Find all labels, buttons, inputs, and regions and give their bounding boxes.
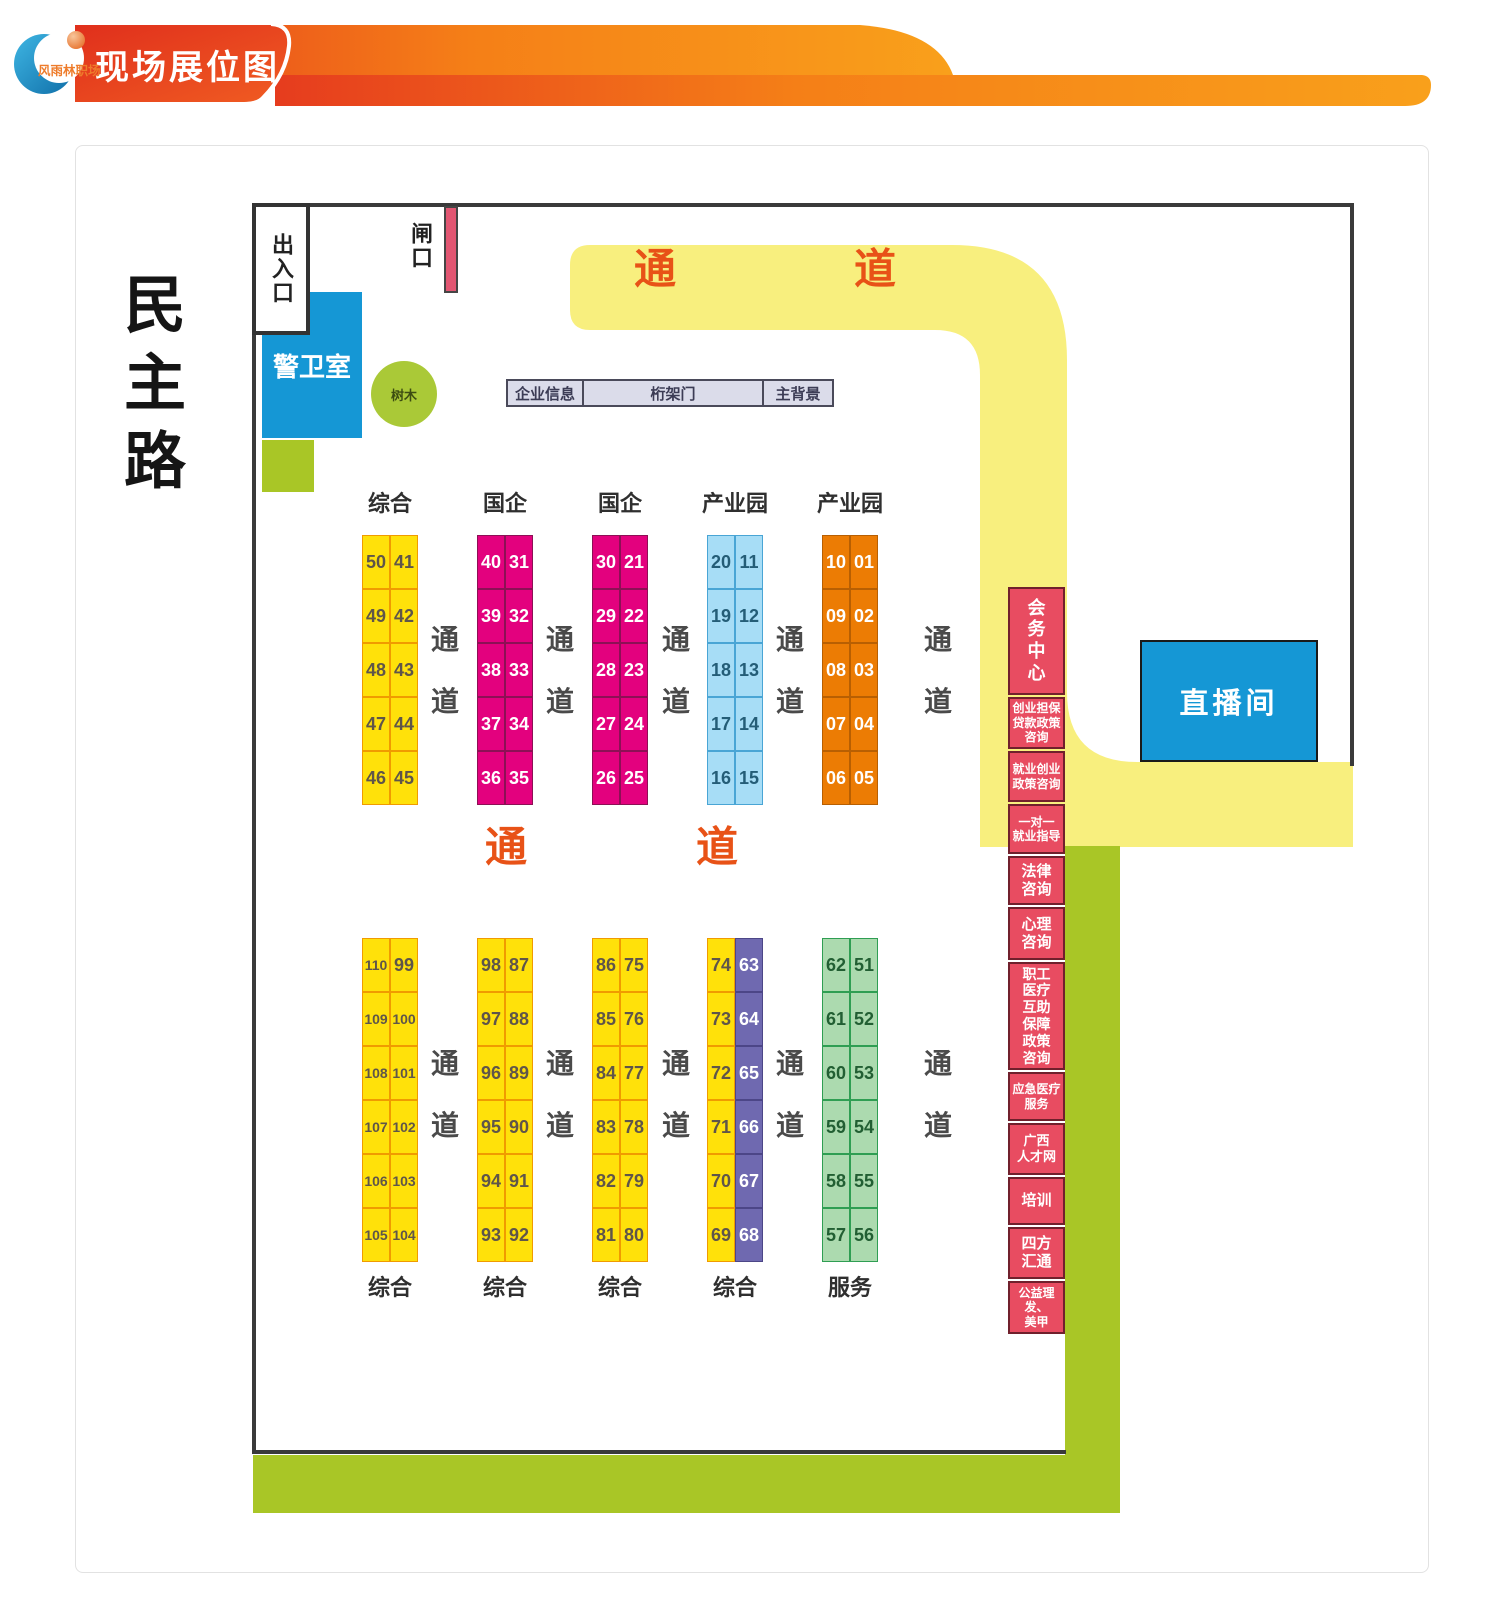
booth-34: 34 — [505, 697, 533, 751]
info-bar-seg-truss-gate: 桁架门 — [582, 381, 762, 405]
group-label: 服务 — [828, 1270, 872, 1302]
booth-81: 81 — [592, 1208, 620, 1262]
booth-25: 25 — [620, 751, 648, 805]
booth-31: 31 — [505, 535, 533, 589]
booth-72: 72 — [707, 1046, 735, 1100]
booth-21: 21 — [620, 535, 648, 589]
logo-wordmark: 风雨林职场 — [38, 60, 101, 79]
booth-87: 87 — [505, 938, 533, 992]
booth-19: 19 — [707, 589, 735, 643]
street-label: 民主路 — [103, 272, 193, 506]
plan-border-bottom — [252, 1450, 1066, 1454]
booth-pair: 40393837363132333435 — [477, 535, 533, 805]
booth-79: 79 — [620, 1154, 648, 1208]
booth-pair: 626160595857515253545556 — [822, 938, 878, 1262]
booth-94: 94 — [477, 1154, 505, 1208]
booth-61: 61 — [822, 992, 850, 1046]
booth-column: 110109108107106105 — [362, 938, 390, 1262]
booth-93: 93 — [477, 1208, 505, 1262]
service-cell: 法律 咨询 — [1008, 856, 1065, 905]
booth-column: 515253545556 — [850, 938, 878, 1262]
booth-106: 106 — [362, 1154, 390, 1208]
booth-43: 43 — [390, 643, 418, 697]
service-cell: 应急医疗 服务 — [1008, 1072, 1065, 1121]
service-cell: 公益理发、 美甲 — [1008, 1281, 1065, 1334]
corridor-label: 道 — [854, 236, 896, 297]
booth-64: 64 — [735, 992, 763, 1046]
booth-08: 08 — [822, 643, 850, 697]
booth-column: 2019181716 — [707, 535, 735, 805]
booth-03: 03 — [850, 643, 878, 697]
group-label: 综合 — [483, 1270, 527, 1302]
plan-border-right — [1350, 203, 1354, 766]
group-label: 产业园 — [817, 486, 883, 518]
booth-55: 55 — [850, 1154, 878, 1208]
booth-91: 91 — [505, 1154, 533, 1208]
aisle-label: 通 — [546, 618, 574, 658]
booth-96: 96 — [477, 1046, 505, 1100]
booth-101: 101 — [390, 1046, 418, 1100]
booth-110: 110 — [362, 938, 390, 992]
booth-40: 40 — [477, 535, 505, 589]
plan-border-left — [252, 203, 256, 1454]
booth-78: 78 — [620, 1100, 648, 1154]
live-stream-room: 直播间 — [1140, 640, 1318, 762]
booth-104: 104 — [390, 1208, 418, 1262]
booth-column: 1009080706 — [822, 535, 850, 805]
booth-09: 09 — [822, 589, 850, 643]
booth-54: 54 — [850, 1100, 878, 1154]
booth-48: 48 — [362, 643, 390, 697]
booth-109: 109 — [362, 992, 390, 1046]
group-label: 综合 — [368, 486, 412, 518]
booth-10: 10 — [822, 535, 850, 589]
booth-23: 23 — [620, 643, 648, 697]
aisle-label: 道 — [662, 680, 690, 720]
aisle-label: 道 — [776, 1104, 804, 1144]
corridor-label: 通 — [485, 814, 527, 875]
group-label: 综合 — [713, 1270, 757, 1302]
booth-71: 71 — [707, 1100, 735, 1154]
booth-47: 47 — [362, 697, 390, 751]
group-label: 产业园 — [702, 486, 768, 518]
booth-32: 32 — [505, 589, 533, 643]
booth-85: 85 — [592, 992, 620, 1046]
booth-45: 45 — [390, 751, 418, 805]
aisle-label: 道 — [924, 1104, 952, 1144]
booth-49: 49 — [362, 589, 390, 643]
aisle-label: 通 — [776, 618, 804, 658]
service-cell: 培训 — [1008, 1177, 1065, 1225]
booth-90: 90 — [505, 1100, 533, 1154]
booth-38: 38 — [477, 643, 505, 697]
group-label: 国企 — [483, 486, 527, 518]
entrance-box: 出入口 — [252, 203, 310, 335]
booth-66: 66 — [735, 1100, 763, 1154]
aisle-label: 道 — [431, 1104, 459, 1144]
booth-column: 747372717069 — [707, 938, 735, 1262]
booth-28: 28 — [592, 643, 620, 697]
booth-56: 56 — [850, 1208, 878, 1262]
aisle-label: 道 — [924, 680, 952, 720]
corridor-label: 通 — [634, 236, 676, 297]
wall-bar-right — [1065, 846, 1120, 1513]
stage-info-bar: 企业信息 桁架门 主背景 — [506, 379, 834, 407]
booth-pair: 989796959493878889909192 — [477, 938, 533, 1262]
gate-bar — [444, 206, 458, 293]
booth-column: 868584838281 — [592, 938, 620, 1262]
service-cell: 会 务 中 心 — [1008, 587, 1065, 695]
group-label: 国企 — [598, 486, 642, 518]
booth-01: 01 — [850, 535, 878, 589]
booth-06: 06 — [822, 751, 850, 805]
booth-33: 33 — [505, 643, 533, 697]
booth-63: 63 — [735, 938, 763, 992]
booth-pair: 747372717069636465666768 — [707, 938, 763, 1262]
booth-99: 99 — [390, 938, 418, 992]
banner-bar-shape — [275, 75, 1431, 106]
booth-53: 53 — [850, 1046, 878, 1100]
booth-column: 4039383736 — [477, 535, 505, 805]
booth-60: 60 — [822, 1046, 850, 1100]
booth-69: 69 — [707, 1208, 735, 1262]
booth-column: 5049484746 — [362, 535, 390, 805]
booth-41: 41 — [390, 535, 418, 589]
booth-column: 2122232425 — [620, 535, 648, 805]
booth-39: 39 — [477, 589, 505, 643]
aisle-label: 通 — [662, 618, 690, 658]
booth-35: 35 — [505, 751, 533, 805]
service-cell: 广西 人才网 — [1008, 1123, 1065, 1175]
aisle-label: 通 — [546, 1042, 574, 1082]
aisle-label: 道 — [662, 1104, 690, 1144]
booth-107: 107 — [362, 1100, 390, 1154]
wall-bar-bottom — [253, 1455, 1120, 1513]
booth-26: 26 — [592, 751, 620, 805]
booth-02: 02 — [850, 589, 878, 643]
aisle-label: 道 — [776, 680, 804, 720]
booth-18: 18 — [707, 643, 735, 697]
booth-pair: 30292827262122232425 — [592, 535, 648, 805]
booth-column: 99100101102103104 — [390, 938, 418, 1262]
info-bar-seg-backdrop: 主背景 — [762, 381, 832, 405]
booth-51: 51 — [850, 938, 878, 992]
booth-pair: 10090807060102030405 — [822, 535, 878, 805]
booth-column: 1112131415 — [735, 535, 763, 805]
booth-70: 70 — [707, 1154, 735, 1208]
planter-block — [262, 440, 314, 492]
booth-57: 57 — [822, 1208, 850, 1262]
booth-pair: 20191817161112131415 — [707, 535, 763, 805]
booth-17: 17 — [707, 697, 735, 751]
booth-46: 46 — [362, 751, 390, 805]
booth-36: 36 — [477, 751, 505, 805]
booth-68: 68 — [735, 1208, 763, 1262]
booth-13: 13 — [735, 643, 763, 697]
booth-89: 89 — [505, 1046, 533, 1100]
booth-75: 75 — [620, 938, 648, 992]
booth-44: 44 — [390, 697, 418, 751]
service-cell: 一对一 就业指导 — [1008, 804, 1065, 854]
booth-95: 95 — [477, 1100, 505, 1154]
booth-73: 73 — [707, 992, 735, 1046]
booth-62: 62 — [822, 938, 850, 992]
aisle-label: 通 — [431, 618, 459, 658]
booth-77: 77 — [620, 1046, 648, 1100]
service-cell: 就业创业 政策咨询 — [1008, 751, 1065, 802]
tree-circle: 树木 — [371, 361, 437, 427]
booth-column: 3029282726 — [592, 535, 620, 805]
booth-column: 757677787980 — [620, 938, 648, 1262]
booth-27: 27 — [592, 697, 620, 751]
service-cell: 心理 咨询 — [1008, 907, 1065, 960]
aisle-label: 通 — [776, 1042, 804, 1082]
booth-column: 3132333435 — [505, 535, 533, 805]
booth-column: 4142434445 — [390, 535, 418, 805]
aisle-label: 道 — [546, 680, 574, 720]
booth-65: 65 — [735, 1046, 763, 1100]
booth-07: 07 — [822, 697, 850, 751]
booth-pair: 50494847464142434445 — [362, 535, 418, 805]
aisle-label: 通 — [924, 618, 952, 658]
booth-80: 80 — [620, 1208, 648, 1262]
booth-92: 92 — [505, 1208, 533, 1262]
booth-67: 67 — [735, 1154, 763, 1208]
service-cell: 创业担保 贷款政策 咨询 — [1008, 697, 1065, 749]
booth-82: 82 — [592, 1154, 620, 1208]
booth-14: 14 — [735, 697, 763, 751]
booth-102: 102 — [390, 1100, 418, 1154]
booth-pair: 868584838281757677787980 — [592, 938, 648, 1262]
booth-59: 59 — [822, 1100, 850, 1154]
booth-22: 22 — [620, 589, 648, 643]
service-column: 会 务 中 心创业担保 贷款政策 咨询就业创业 政策咨询一对一 就业指导法律 咨… — [1008, 587, 1065, 1336]
booth-86: 86 — [592, 938, 620, 992]
booth-20: 20 — [707, 535, 735, 589]
booth-15: 15 — [735, 751, 763, 805]
booth-column: 0102030405 — [850, 535, 878, 805]
booth-83: 83 — [592, 1100, 620, 1154]
booth-pair: 11010910810710610599100101102103104 — [362, 938, 418, 1262]
booth-98: 98 — [477, 938, 505, 992]
service-cell: 职工 医疗 互助 保障 政策 咨询 — [1008, 962, 1065, 1070]
aisle-label: 通 — [924, 1042, 952, 1082]
booth-52: 52 — [850, 992, 878, 1046]
booth-105: 105 — [362, 1208, 390, 1262]
gate-label: 闸口 — [404, 222, 436, 270]
aisle-label: 道 — [546, 1104, 574, 1144]
booth-16: 16 — [707, 751, 735, 805]
booth-column: 989796959493 — [477, 938, 505, 1262]
booth-100: 100 — [390, 992, 418, 1046]
booth-12: 12 — [735, 589, 763, 643]
aisle-label: 通 — [662, 1042, 690, 1082]
booth-50: 50 — [362, 535, 390, 589]
page-title: 现场展位图 — [95, 40, 305, 89]
booth-24: 24 — [620, 697, 648, 751]
booth-97: 97 — [477, 992, 505, 1046]
group-label: 综合 — [598, 1270, 642, 1302]
booth-37: 37 — [477, 697, 505, 751]
booth-108: 108 — [362, 1046, 390, 1100]
booth-column: 878889909192 — [505, 938, 533, 1262]
info-bar-seg-company: 企业信息 — [508, 381, 582, 405]
booth-05: 05 — [850, 751, 878, 805]
booth-74: 74 — [707, 938, 735, 992]
booth-30: 30 — [592, 535, 620, 589]
booth-103: 103 — [390, 1154, 418, 1208]
booth-58: 58 — [822, 1154, 850, 1208]
group-label: 综合 — [368, 1270, 412, 1302]
service-cell: 四方 汇通 — [1008, 1227, 1065, 1279]
booth-column: 626160595857 — [822, 938, 850, 1262]
booth-column: 636465666768 — [735, 938, 763, 1262]
aisle-label: 通 — [431, 1042, 459, 1082]
corridor-label: 道 — [696, 814, 738, 875]
booth-42: 42 — [390, 589, 418, 643]
booth-76: 76 — [620, 992, 648, 1046]
entrance-label: 出入口 — [265, 233, 297, 305]
booth-11: 11 — [735, 535, 763, 589]
aisle-label: 道 — [431, 680, 459, 720]
booth-84: 84 — [592, 1046, 620, 1100]
booth-04: 04 — [850, 697, 878, 751]
booth-29: 29 — [592, 589, 620, 643]
plan-border-top — [252, 203, 1354, 207]
booth-88: 88 — [505, 992, 533, 1046]
